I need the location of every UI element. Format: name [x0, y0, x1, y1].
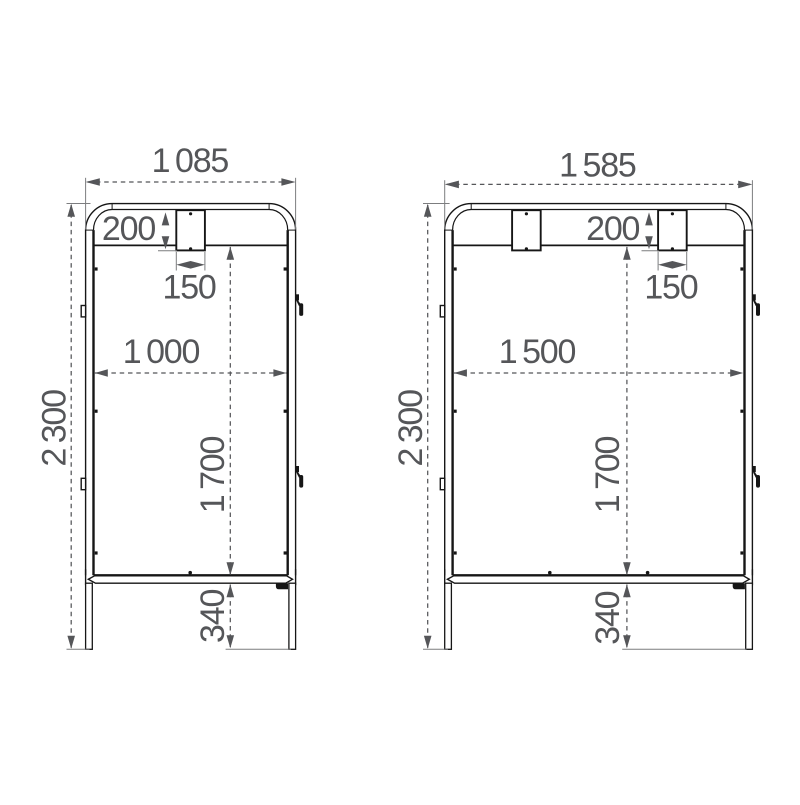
- svg-text:340: 340: [589, 591, 627, 644]
- svg-text:200: 200: [102, 210, 155, 248]
- svg-text:1 700: 1 700: [589, 436, 627, 513]
- svg-text:1 085: 1 085: [152, 142, 229, 180]
- svg-text:340: 340: [194, 590, 232, 643]
- svg-text:2 300: 2 300: [36, 390, 74, 467]
- svg-text:2 300: 2 300: [392, 390, 430, 467]
- svg-text:150: 150: [644, 269, 697, 307]
- svg-text:1 700: 1 700: [194, 436, 232, 513]
- svg-text:1 000: 1 000: [123, 333, 200, 371]
- svg-text:1 585: 1 585: [559, 147, 636, 185]
- svg-text:1 500: 1 500: [499, 333, 576, 371]
- svg-text:150: 150: [163, 269, 216, 307]
- svg-text:200: 200: [586, 210, 639, 248]
